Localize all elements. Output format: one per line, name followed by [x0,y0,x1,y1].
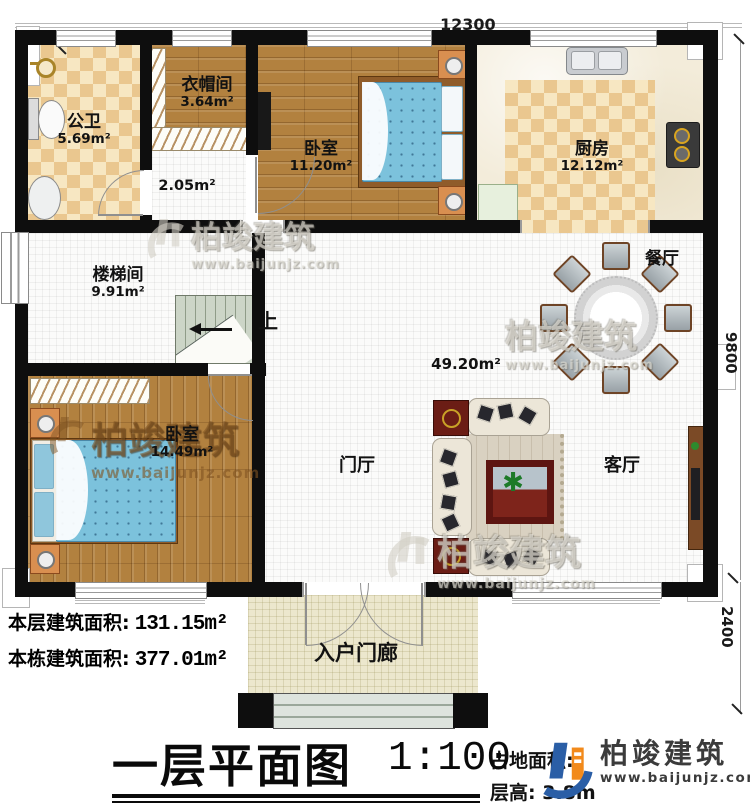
plan-scale: 1:100 [388,736,511,782]
building-area-label: 本栋建筑面积: [8,648,130,670]
stove-burner [674,146,690,162]
wall [15,30,28,232]
wall [246,45,258,155]
opening-jamb [241,220,243,233]
bed-pillow [441,134,463,180]
sink-basin [28,176,61,220]
dining-chair [664,304,692,332]
wall [15,302,28,597]
nightstand [30,408,60,438]
window-sill-line [75,603,205,604]
tv-wall-unit [258,92,271,150]
opening-jamb [424,582,426,597]
side-table [433,538,469,574]
wall [660,582,718,597]
stairs-up-label: 上 [258,310,278,332]
wall [650,220,703,233]
room-label-dining: 餐厅 [645,250,679,269]
nightstand [438,50,467,79]
floor-area-label: 本层建筑面积: [8,612,130,634]
title-underline [112,794,480,798]
room-label-kitchen: 厨房12.12m² [561,140,624,174]
window-sill-line [15,27,742,28]
wall [15,582,75,597]
television [691,468,700,520]
wall [140,45,152,170]
window [56,30,116,47]
building-area-value: 377.01m² [135,649,228,672]
window-sill-line [75,600,205,601]
wall [285,220,520,233]
floor-height-label: 层高: [490,782,536,804]
sofa-cushion [440,494,457,511]
shower-arm [30,62,40,65]
room-label-bedroom-left: 卧室14.49m² [151,426,214,460]
porch-steps [273,693,455,729]
dimension-line [740,42,741,580]
wall [205,582,302,597]
room-label-cloakroom: 衣帽间3.64m² [180,76,233,110]
door-leaf [98,214,143,216]
company-name: 柏竣建筑 [600,738,750,770]
window-sill-line [512,600,660,601]
nightstand [30,544,60,574]
wardrobe [30,378,150,404]
side-table [433,400,469,436]
refrigerator [478,184,518,222]
wall [252,376,265,582]
wall [114,30,172,45]
room-label-foyer: 门厅 [339,456,375,476]
dimension-tick [733,33,744,44]
door-leaf [421,583,423,645]
sofa-cushion [497,403,515,421]
room-label-porch: 入户门廊 [314,642,398,666]
window [1,232,29,304]
window-sill-line [512,603,660,604]
dimension-line [740,582,741,714]
room-label-hall: 2.05m² [158,178,215,194]
window-sill-line [15,23,742,24]
wall [28,363,208,376]
opening-jamb [302,582,304,597]
dimension-right-height: 9800 [722,332,740,374]
window [307,30,432,47]
stair-direction-arrow [200,328,232,331]
title-underline-2 [112,801,480,803]
cabinet-plant [691,442,699,450]
stair-arrow-head [189,323,201,335]
bed-pillow [34,492,54,537]
room-label-open-area: 49.20m² [431,356,501,373]
wall [250,363,266,376]
door-leaf [255,157,257,213]
room-label-living: 客厅 [604,456,640,476]
plan-title: 一层平面图 [112,730,352,796]
opening-jamb [283,220,285,233]
cloakroom-rack-horizontal [142,127,248,151]
bed-pillow [441,86,463,132]
company-logo: 柏竣建筑 www.baijunjz.com [540,738,750,800]
room-label-stair-hall: 楼梯间9.91m² [91,266,144,300]
floor-area-value: 131.15m² [135,613,228,636]
stair-break-line [175,315,258,364]
door-leaf [305,583,307,645]
company-url: www.baijunjz.com [600,770,750,786]
wall [465,45,477,233]
window [530,30,657,47]
nightstand [438,186,467,215]
wall [230,30,307,45]
company-logo-icon [540,738,594,800]
door-leaf [208,374,252,376]
floor-plan: ✱ 柏竣建筑 www.baijunjz.com 柏竣建筑 www.baijunj… [0,0,750,812]
dining-chair [540,304,568,332]
potted-plant: ✱ [500,470,526,496]
wall [425,582,512,597]
window [75,582,207,599]
shower-head-icon [36,58,56,78]
opening-jamb [648,220,650,233]
porch-column [453,693,488,728]
stats-block: 本层建筑面积: 131.15m² 本栋建筑面积: 377.01m² [8,608,228,672]
room-label-bedroom-top: 卧室11.20m² [290,140,353,174]
opening-jamb [520,220,522,233]
sink-basin-right [598,51,622,70]
wall [28,220,240,233]
porch-column [238,693,273,728]
stove-burner [674,128,690,144]
dimension-tick [727,572,738,583]
dimension-porch-depth: 2400 [718,606,736,648]
window [512,582,662,599]
room-label-bathroom: 公卫5.69m² [57,113,110,147]
wall [703,30,718,597]
window [172,30,232,47]
dining-chair [602,366,630,394]
dimension-top-width: 12300 [440,15,496,34]
sink-basin-left [571,51,595,70]
dining-table [574,276,658,360]
kitchen-passage [520,220,650,233]
wall [252,233,265,376]
bed-pillow [34,444,54,489]
dining-chair [602,242,630,270]
